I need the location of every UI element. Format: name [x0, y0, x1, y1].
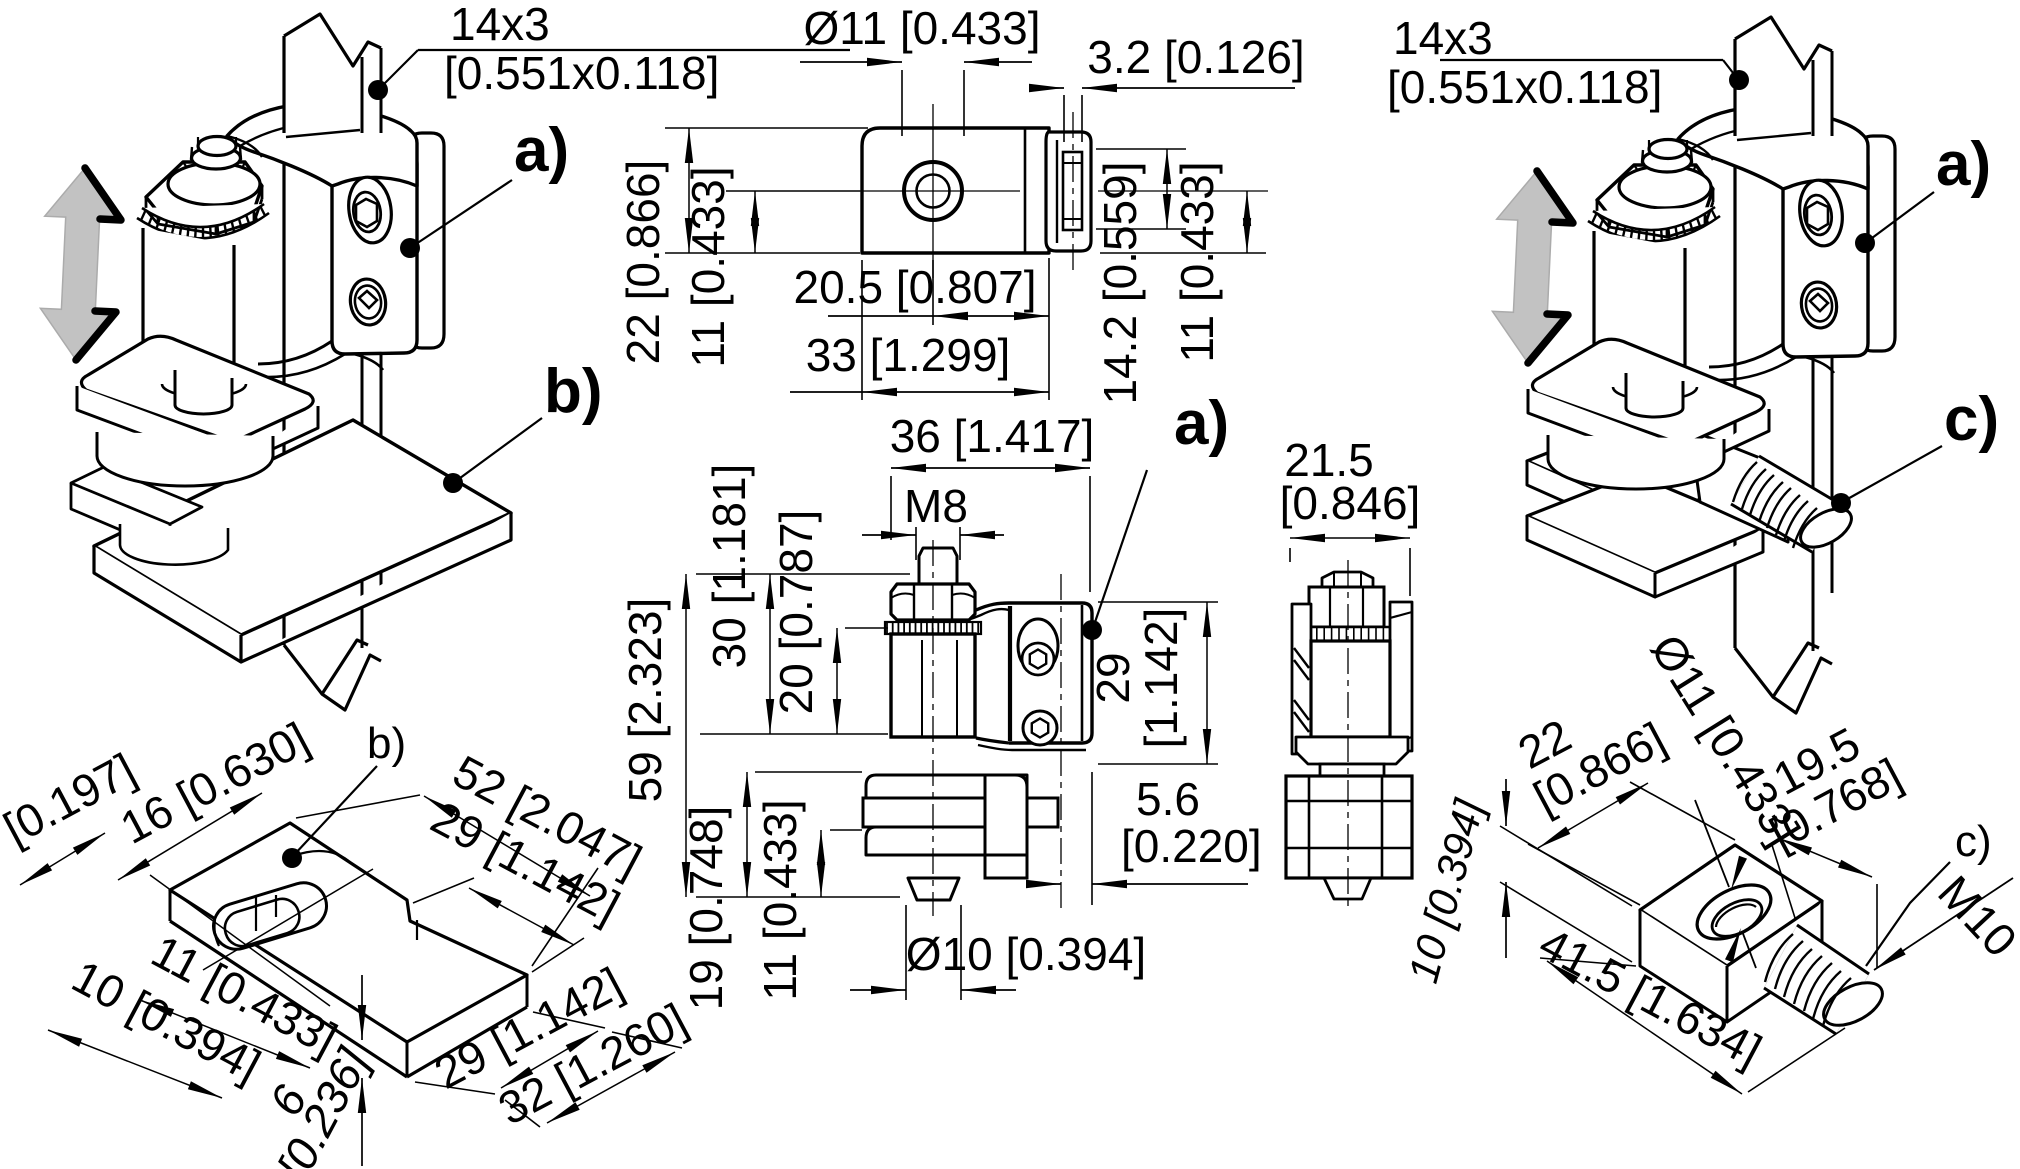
svg-text:c): c) [1955, 817, 1992, 866]
svg-text:a): a) [514, 116, 569, 185]
svg-text:[0.551x0.118]: [0.551x0.118] [1387, 61, 1662, 113]
svg-text:20.5 [0.807]: 20.5 [0.807] [794, 261, 1037, 313]
svg-text:Ø10 [0.394]: Ø10 [0.394] [906, 928, 1146, 980]
svg-text:19 [0.748]: 19 [0.748] [680, 806, 732, 1011]
svg-text:c): c) [1944, 385, 1999, 454]
svg-text:[0.846]: [0.846] [1280, 477, 1421, 529]
svg-text:33 [1.299]: 33 [1.299] [806, 329, 1011, 381]
svg-text:[1.142]: [1.142] [1135, 608, 1187, 749]
svg-text:5.6: 5.6 [1136, 773, 1200, 825]
svg-text:30 [1.181]: 30 [1.181] [703, 464, 755, 669]
svg-text:b): b) [367, 719, 406, 768]
svg-text:11 [0.433]: 11 [0.433] [1171, 161, 1223, 362]
svg-text:3.2 [0.126]: 3.2 [0.126] [1087, 31, 1304, 83]
svg-text:14x3: 14x3 [1393, 12, 1493, 64]
svg-text:29: 29 [1087, 652, 1139, 703]
svg-text:11 [0.433]: 11 [0.433] [754, 799, 806, 1000]
svg-text:b): b) [544, 357, 603, 426]
svg-text:14x3: 14x3 [450, 0, 550, 50]
svg-text:a): a) [1174, 389, 1229, 458]
svg-text:M8: M8 [904, 480, 968, 532]
svg-text:11 [0.433]: 11 [0.433] [682, 166, 734, 367]
svg-text:[0.551x0.118]: [0.551x0.118] [444, 47, 719, 99]
svg-text:[0.220]: [0.220] [1121, 820, 1262, 872]
svg-text:22 [0.866]: 22 [0.866] [617, 160, 669, 365]
svg-text:36 [1.417]: 36 [1.417] [890, 410, 1095, 462]
svg-text:Ø11 [0.433]: Ø11 [0.433] [804, 2, 1041, 54]
svg-text:59 [2.323]: 59 [2.323] [619, 598, 671, 803]
svg-text:a): a) [1936, 130, 1991, 199]
svg-text:14.2 [0.559]: 14.2 [0.559] [1094, 162, 1146, 405]
svg-text:20 [0.787]: 20 [0.787] [770, 510, 822, 715]
